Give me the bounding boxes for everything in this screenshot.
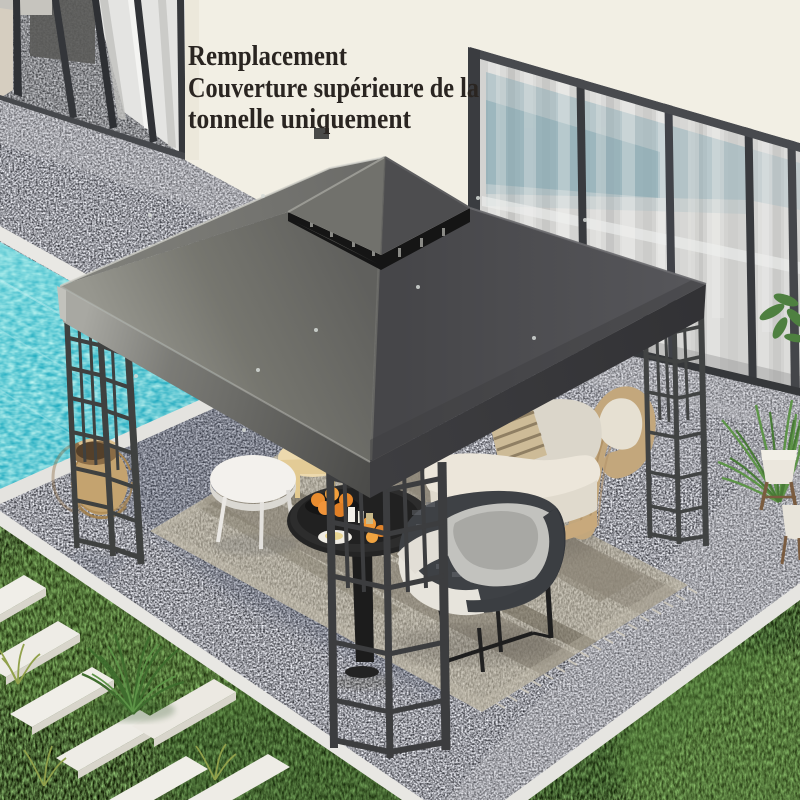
svg-text:Remplacement: Remplacement [188,41,348,72]
svg-text:tonnelle uniquement: tonnelle uniquement [188,104,412,135]
svg-text:Couverture supérieure de la: Couverture supérieure de la [188,73,479,104]
